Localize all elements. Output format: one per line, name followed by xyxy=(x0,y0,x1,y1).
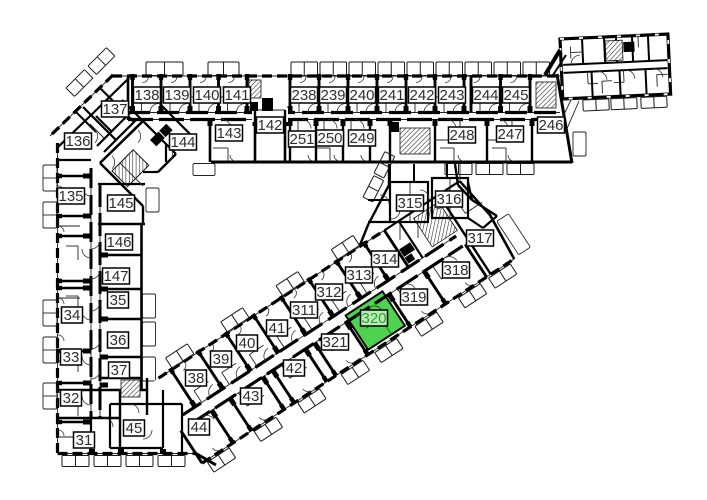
svg-text:238: 238 xyxy=(291,87,316,104)
svg-text:248: 248 xyxy=(449,127,474,144)
svg-text:317: 317 xyxy=(467,230,492,247)
svg-text:137: 137 xyxy=(102,101,127,118)
svg-text:44: 44 xyxy=(191,419,208,436)
svg-text:142: 142 xyxy=(257,117,282,134)
svg-text:143: 143 xyxy=(216,125,241,142)
svg-text:239: 239 xyxy=(320,87,345,104)
svg-text:38: 38 xyxy=(188,370,205,387)
svg-text:318: 318 xyxy=(443,262,468,279)
svg-text:146: 146 xyxy=(106,234,131,251)
svg-text:315: 315 xyxy=(397,195,422,212)
svg-text:33: 33 xyxy=(63,349,80,366)
svg-text:37: 37 xyxy=(111,362,128,379)
svg-text:243: 243 xyxy=(439,87,464,104)
svg-text:36: 36 xyxy=(110,332,127,349)
svg-text:32: 32 xyxy=(63,390,80,407)
svg-text:246: 246 xyxy=(538,117,563,134)
svg-text:34: 34 xyxy=(64,307,81,324)
svg-text:314: 314 xyxy=(372,251,397,268)
svg-text:312: 312 xyxy=(316,284,341,301)
svg-text:136: 136 xyxy=(65,133,90,150)
svg-text:31: 31 xyxy=(76,432,93,449)
svg-text:311: 311 xyxy=(292,302,316,319)
svg-text:247: 247 xyxy=(497,126,522,143)
svg-text:40: 40 xyxy=(239,335,256,352)
svg-text:244: 244 xyxy=(473,87,498,104)
svg-text:240: 240 xyxy=(349,87,374,104)
svg-text:145: 145 xyxy=(108,195,133,212)
svg-text:321: 321 xyxy=(322,334,347,351)
svg-text:320: 320 xyxy=(361,310,386,327)
svg-text:144: 144 xyxy=(170,134,195,151)
svg-text:249: 249 xyxy=(349,130,374,147)
svg-text:139: 139 xyxy=(164,87,189,104)
svg-text:250: 250 xyxy=(317,130,342,147)
svg-text:41: 41 xyxy=(269,320,286,337)
svg-text:242: 242 xyxy=(409,87,434,104)
svg-text:140: 140 xyxy=(194,87,219,104)
svg-text:147: 147 xyxy=(103,268,128,285)
svg-text:135: 135 xyxy=(58,188,83,205)
svg-text:138: 138 xyxy=(134,87,159,104)
svg-text:35: 35 xyxy=(110,292,127,309)
svg-text:42: 42 xyxy=(286,360,303,377)
svg-text:316: 316 xyxy=(436,191,461,208)
svg-text:45: 45 xyxy=(126,420,143,437)
svg-text:319: 319 xyxy=(401,289,426,306)
svg-text:43: 43 xyxy=(243,388,260,405)
svg-text:251: 251 xyxy=(289,131,314,148)
svg-text:245: 245 xyxy=(503,87,528,104)
svg-text:39: 39 xyxy=(213,351,230,368)
svg-text:313: 313 xyxy=(346,267,371,284)
svg-text:241: 241 xyxy=(379,87,404,104)
svg-text:141: 141 xyxy=(224,87,249,104)
